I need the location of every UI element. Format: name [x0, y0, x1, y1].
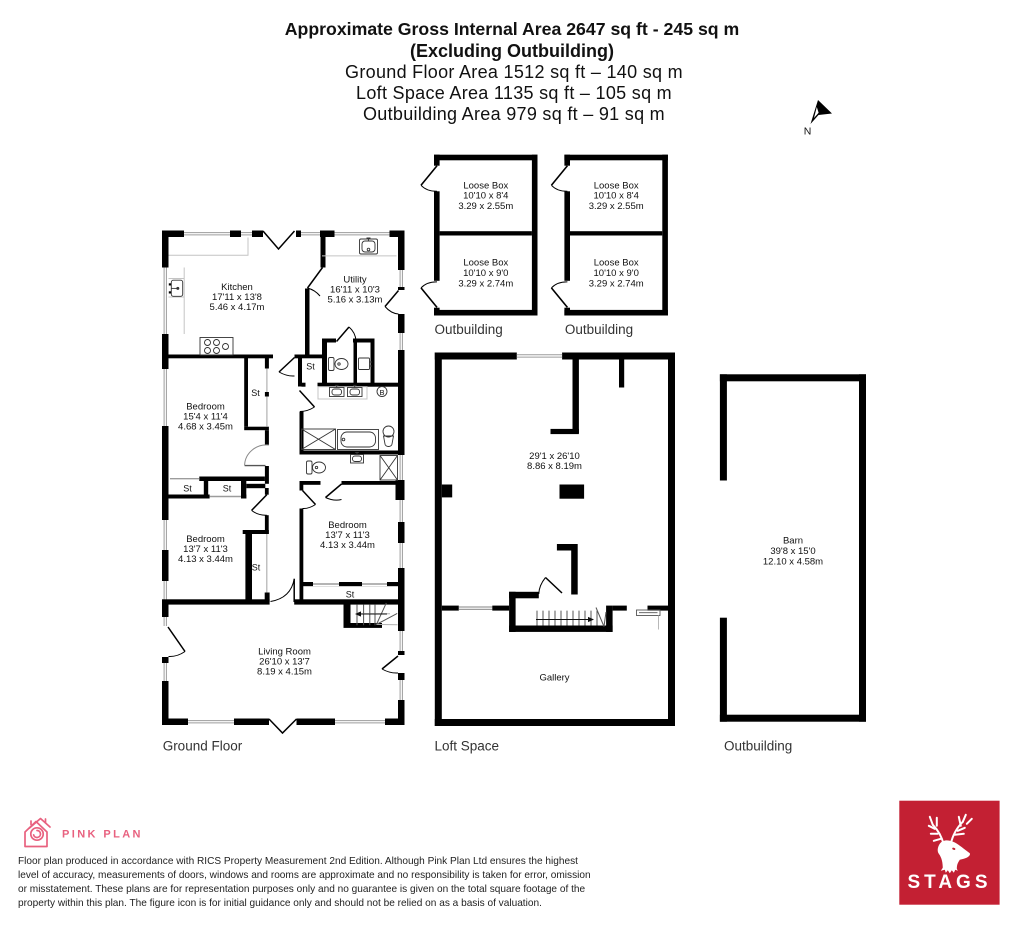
- svg-text:B: B: [379, 388, 384, 397]
- svg-text:Outbuilding: Outbuilding: [435, 322, 503, 337]
- svg-text:Outbuilding: Outbuilding: [565, 322, 633, 337]
- svg-text:St: St: [183, 484, 192, 494]
- svg-text:Loose Box10'10 x 8'43.29 x 2.5: Loose Box10'10 x 8'43.29 x 2.55m: [589, 180, 644, 212]
- svg-text:St: St: [306, 362, 315, 372]
- svg-text:PINK PLAN: PINK PLAN: [62, 829, 143, 841]
- svg-text:Loft Space Area 1135 sq ft – 1: Loft Space Area 1135 sq ft – 105 sq m: [356, 83, 672, 103]
- svg-text:(Excluding Outbuilding): (Excluding Outbuilding): [410, 41, 614, 61]
- svg-text:Loose Box10'10 x 8'43.29 x 2.5: Loose Box10'10 x 8'43.29 x 2.55m: [458, 180, 513, 212]
- svg-text:Living Room26'10 x 13'78.19 x: Living Room26'10 x 13'78.19 x 4.15m: [257, 647, 312, 678]
- svg-text:Loose Box10'10 x 9'03.29 x 2.7: Loose Box10'10 x 9'03.29 x 2.74m: [458, 258, 513, 290]
- svg-text:St: St: [251, 388, 260, 398]
- svg-text:St: St: [346, 589, 355, 599]
- svg-text:29'1 x 26'108.86 x 8.19m: 29'1 x 26'108.86 x 8.19m: [527, 451, 582, 472]
- svg-text:Ground Floor: Ground Floor: [163, 739, 243, 754]
- svg-text:Loose Box10'10 x 9'03.29 x 2.7: Loose Box10'10 x 9'03.29 x 2.74m: [589, 258, 644, 290]
- svg-text:Ground Floor Area 1512 sq ft –: Ground Floor Area 1512 sq ft – 140 sq m: [345, 62, 683, 82]
- svg-text:St: St: [252, 563, 261, 573]
- svg-text:St: St: [223, 484, 232, 494]
- svg-text:Outbuilding: Outbuilding: [724, 739, 792, 754]
- svg-text:Gallery: Gallery: [539, 673, 569, 684]
- svg-text:Approximate Gross Internal Are: Approximate Gross Internal Area 2647 sq …: [285, 19, 739, 39]
- svg-text:Loft Space: Loft Space: [435, 739, 500, 754]
- svg-text:STAGS: STAGS: [907, 872, 991, 893]
- svg-text:N: N: [804, 126, 812, 138]
- svg-text:Outbuilding Area 979 sq ft – 9: Outbuilding Area 979 sq ft – 91 sq m: [363, 104, 665, 124]
